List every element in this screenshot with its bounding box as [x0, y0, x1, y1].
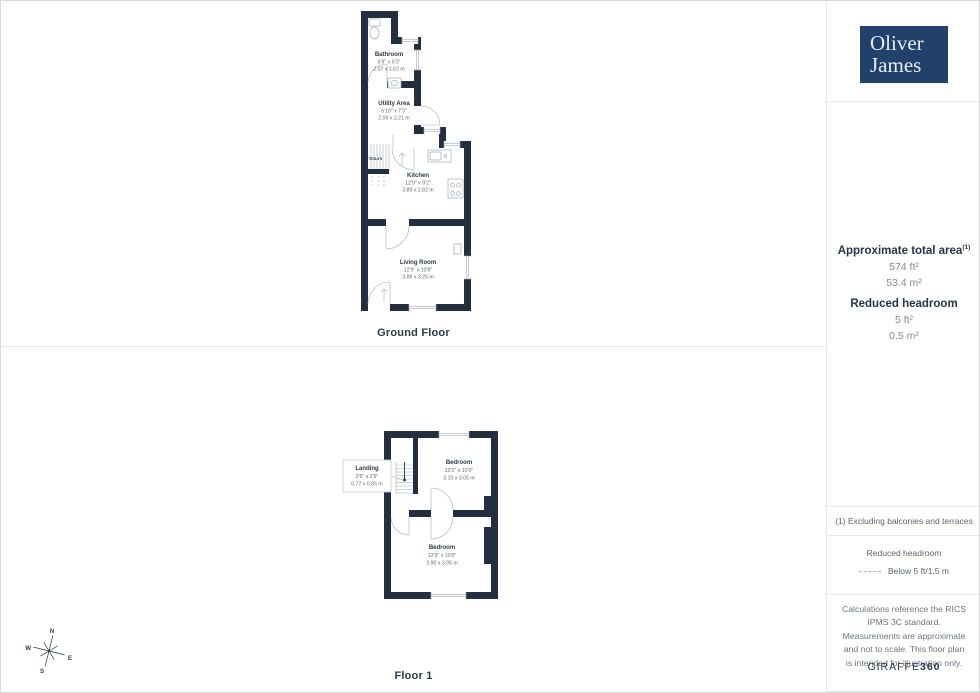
window	[414, 50, 421, 70]
window	[431, 592, 466, 599]
room-label-bathroom: Bathroom 6'9" x 5'3" 2.07 x 1.62 m	[373, 52, 404, 73]
floorplan-document: Stairs Bathroom 6'9" x 5'3" 2.07 x 1.62 …	[0, 0, 980, 693]
room-name: Bedroom	[446, 460, 472, 466]
room-dim-imperial: 12'9" x 10'8"	[404, 268, 433, 274]
floor1-caption: Floor 1	[1, 670, 826, 682]
window	[409, 304, 436, 311]
room-name: Kitchen	[407, 173, 429, 179]
room-label-living: Living Room 12'9" x 10'8" 3.89 x 3.25 m	[400, 260, 436, 281]
total-area-sqm: 53.4 m²	[827, 277, 980, 289]
door-arc	[386, 226, 409, 249]
stairs-label: Stairs	[369, 156, 383, 162]
landing-callout: Landing 2'6" x 2'9" 0.77 x 0.85 m	[343, 460, 404, 492]
total-area-title-text: Approximate total area	[838, 245, 963, 257]
room-dim-imperial: 12'9" x 9'2"	[405, 181, 431, 187]
legend-item-label: Below 5 ft/1.5 m	[888, 566, 949, 576]
compass-north-label: N	[50, 629, 54, 635]
room-dim-imperial: 12'9" x 10'0"	[428, 553, 457, 559]
sidebar-section-divider	[827, 691, 980, 692]
window	[402, 37, 418, 44]
room-dim-metric: 3.89 x 2.82 m	[402, 188, 433, 194]
kitchen-sink-icon	[428, 150, 451, 162]
room-dim-imperial: 6'9" x 5'3"	[378, 60, 401, 66]
legend-title: Reduced headroom	[827, 548, 980, 558]
reduced-headroom-title: Reduced headroom	[827, 298, 980, 310]
sidebar-section-divider	[827, 101, 980, 102]
room-label-bedroom2: Bedroom 12'9" x 10'0" 3.90 x 3.05 m	[426, 545, 457, 567]
ground-floor-caption: Ground Floor	[1, 327, 826, 339]
door-arc	[391, 517, 409, 535]
room-dim-imperial: 2'6" x 2'9"	[356, 474, 379, 480]
compass-south-label: S	[40, 669, 44, 675]
door-arc	[421, 106, 440, 125]
ground-floor-plan: Stairs Bathroom 6'9" x 5'3" 2.07 x 1.62 …	[356, 6, 476, 321]
info-sidebar: Oliver James Approximate total area(1) 5…	[827, 1, 980, 693]
window	[439, 431, 469, 438]
sidebar-section-divider	[827, 594, 980, 595]
reduced-headroom-block: Reduced headroom 5 ft² 0.5 m²	[827, 298, 980, 342]
room-dim-imperial: 6'10" x 7'3"	[381, 109, 407, 115]
room-dim-metric: 2.07 x 1.62 m	[373, 67, 404, 73]
door-arc	[431, 488, 453, 510]
floor1-walls	[384, 431, 498, 599]
toilet-icon	[369, 19, 380, 39]
radiator-icon	[454, 244, 461, 254]
stove-icon	[448, 179, 463, 198]
room-dim-metric: 3.90 x 3.05 m	[426, 561, 457, 567]
logo-line-1: Oliver	[870, 33, 948, 55]
compass-rose: N E S W	[13, 619, 89, 681]
room-label-utility: Utility Area 6'10" x 7'3" 2.09 x 2.21 m	[378, 101, 410, 122]
entrance-door-arc	[368, 282, 390, 304]
stairs	[396, 462, 413, 494]
window	[424, 127, 440, 134]
window	[444, 141, 460, 148]
logo-line-2: James	[870, 55, 948, 77]
agency-logo: Oliver James	[860, 26, 948, 83]
floor1-plan: Landing 2'6" x 2'9" 0.77 x 0.85 m Bedroo…	[336, 429, 501, 604]
sidebar-section-divider	[827, 535, 980, 536]
sidebar-section-divider	[827, 506, 980, 507]
room-dim-imperial: 10'2" x 10'0"	[445, 468, 474, 474]
section-divider	[1, 346, 826, 347]
room-name: Bathroom	[375, 52, 403, 58]
legend-block: Reduced headroom Below 5 ft/1.5 m	[827, 548, 980, 576]
compass-west-label: W	[25, 646, 31, 652]
room-label-bedroom1: Bedroom 10'2" x 10'0" 3.10 x 3.05 m	[443, 460, 474, 482]
total-area-title: Approximate total area(1)	[827, 244, 980, 257]
compass-east-label: E	[68, 656, 72, 662]
entry-arrow-icon	[399, 153, 405, 166]
compass-center	[48, 650, 50, 652]
reduced-headroom-sqm: 0.5 m²	[827, 330, 980, 342]
room-label-kitchen: Kitchen 12'9" x 9'2" 3.89 x 2.82 m	[402, 173, 433, 194]
room-dim-metric: 3.10 x 3.05 m	[443, 476, 474, 482]
total-area-footnote-ref: (1)	[962, 244, 970, 251]
room-name: Landing	[355, 466, 379, 472]
room-name: Living Room	[400, 260, 436, 266]
room-dim-metric: 0.77 x 0.85 m	[351, 482, 382, 488]
area-footnote: (1) Excluding balconies and terraces	[827, 516, 980, 526]
credit-suffix: 360	[920, 661, 941, 673]
room-dim-metric: 2.09 x 2.21 m	[378, 116, 409, 122]
dashed-line-icon	[859, 571, 881, 572]
legend-row: Below 5 ft/1.5 m	[827, 566, 980, 576]
room-name: Bedroom	[429, 545, 455, 551]
total-area-block: Approximate total area(1) 574 ft² 53.4 m…	[827, 244, 980, 289]
giraffe360-credit: GIRAFFE360	[827, 661, 980, 673]
window	[464, 256, 471, 279]
reduced-headroom-sqft: 5 ft²	[827, 314, 980, 326]
door-arc	[392, 134, 414, 170]
stairs	[368, 144, 389, 188]
credit-brand: GIRAFFE	[867, 661, 920, 673]
total-area-sqft: 574 ft²	[827, 261, 980, 273]
room-name: Utility Area	[378, 101, 410, 107]
room-dim-metric: 3.89 x 3.25 m	[402, 275, 433, 281]
door-arc	[431, 517, 453, 539]
bathroom-sink-icon	[388, 78, 401, 88]
entry-arrow-icon	[381, 289, 387, 302]
